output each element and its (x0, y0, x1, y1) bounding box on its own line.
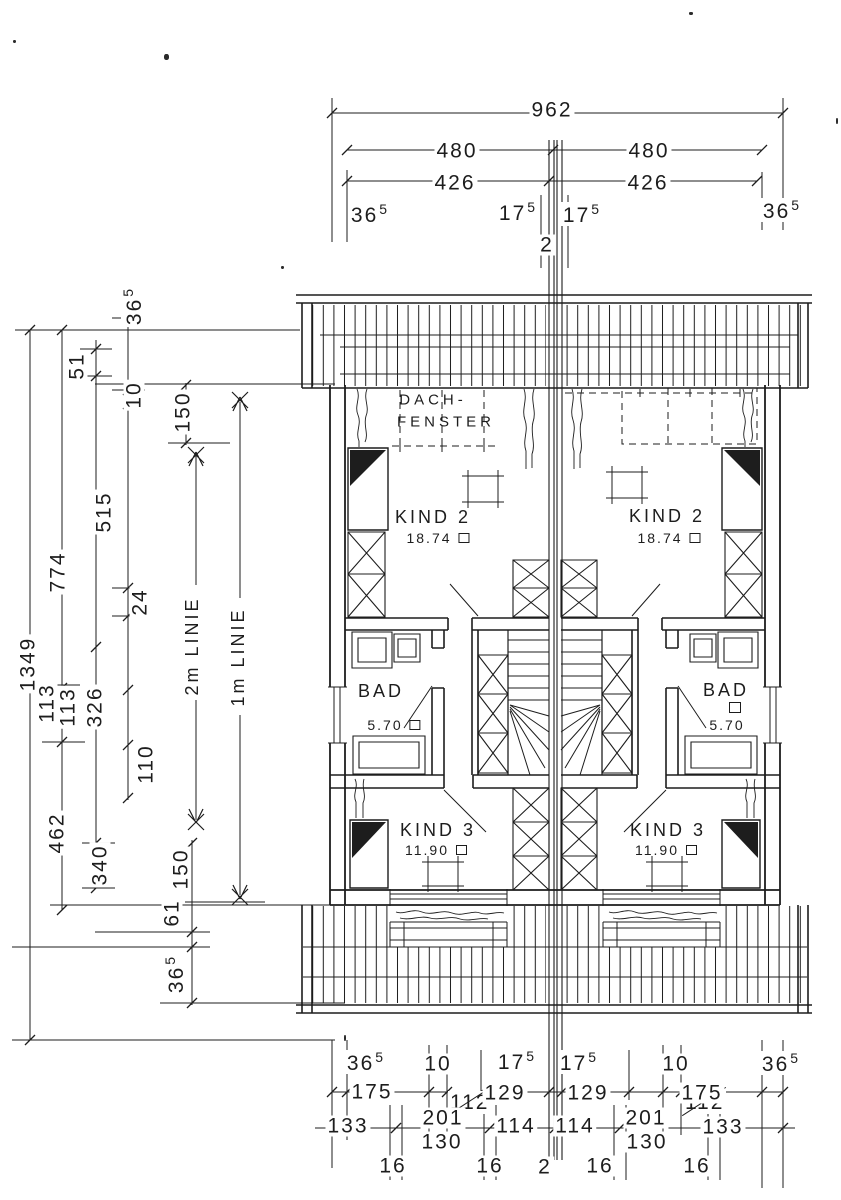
room-area-kind3-left: 11.90 (403, 843, 469, 857)
dim-bot-175b-left: 175 (349, 1082, 394, 1103)
dim-bot-133-right: 133 (700, 1117, 745, 1138)
room-name-kind3-right: KIND 3 (628, 821, 708, 839)
door-leaf-kind2-left (350, 450, 386, 486)
dim-left-150a: 150 (173, 389, 194, 434)
dim-bot-201-right: 201 (623, 1108, 668, 1129)
floor-plan-drawing (0, 0, 841, 1200)
dim-bot-16-d: 16 (681, 1156, 712, 1177)
dim-left-515: 515 (94, 489, 115, 534)
dim-top-365-right: 365 (761, 198, 801, 222)
dim-top-480-right: 480 (626, 141, 671, 162)
dim-left-110: 110 (136, 742, 157, 785)
dim-left-24: 24 (130, 586, 151, 617)
scan-speck (836, 118, 838, 124)
room-name-bad-right: BAD (701, 681, 751, 699)
dim-top-overall: 962 (529, 100, 574, 121)
dim-bot-175-left: 175 (496, 1049, 536, 1073)
sqm-symbol (459, 533, 470, 543)
dim-top-365-left: 365 (349, 202, 389, 226)
scan-speck (164, 54, 169, 60)
dim-bot-114-right: 114 (553, 1116, 596, 1137)
sqm-symbol (686, 845, 697, 855)
room-area-kind2-right: 18.74 (635, 531, 702, 545)
dim-bot-130-right: 130 (624, 1132, 669, 1153)
scan-speck (689, 12, 693, 15)
dim-top-gap: 2 (538, 235, 556, 256)
scanned-floor-plan-sheet: 962 480 480 426 426 365 175 175 365 2 36… (0, 0, 841, 1200)
sqm-symbol (729, 702, 741, 713)
door-leaf-kind2-right (724, 450, 760, 486)
label-dachfenster-1: DACH- (397, 393, 469, 408)
dim-top-480-left: 480 (434, 141, 479, 162)
scan-speck (344, 1035, 346, 1041)
dim-top-175-left: 175 (497, 200, 537, 224)
dim-top-426-left: 426 (432, 173, 477, 194)
sqm-symbol (410, 720, 421, 730)
dim-left-774: 774 (48, 549, 69, 594)
dim-top-175-right: 175 (561, 202, 601, 226)
room-area-bad-left: 5.70 (365, 718, 422, 732)
dim-left-365-bottom: 365 (163, 955, 187, 995)
dim-bot-365-right: 365 (760, 1051, 800, 1075)
dim-bot-2: 2 (536, 1157, 554, 1178)
dim-top-426-right: 426 (625, 173, 670, 194)
room-name-kind2-right: KIND 2 (627, 507, 707, 525)
dim-bot-10-right: 10 (660, 1054, 691, 1075)
scan-speck (281, 266, 284, 269)
dim-bot-129-left: 129 (482, 1083, 527, 1104)
dim-bot-129-right: 129 (565, 1083, 610, 1104)
dim-left-365-top: 365 (121, 287, 145, 327)
dim-bot-201-left: 201 (420, 1108, 465, 1129)
sqm-symbol (690, 533, 701, 543)
dim-bot-133-left: 133 (325, 1116, 370, 1137)
dim-bot-175b-right: 175 (679, 1083, 724, 1104)
dim-left-326: 326 (85, 684, 106, 729)
dim-bot-16-b: 16 (474, 1156, 505, 1177)
dim-left-340: 340 (90, 842, 111, 887)
sqm-symbol (456, 845, 467, 855)
scan-speck (13, 40, 16, 43)
dim-bot-130-left: 130 (419, 1132, 464, 1153)
dim-bot-16-a: 16 (377, 1156, 408, 1177)
ref-line-1m-label: 1m LINIE (229, 605, 247, 708)
label-dachfenster-2: FENSTER (395, 415, 497, 430)
room-name-kind3-left: KIND 3 (398, 821, 478, 839)
dim-left-462: 462 (47, 810, 68, 855)
door-leaf-kind3-left (352, 822, 386, 858)
room-area-kind2-left: 18.74 (404, 531, 471, 545)
room-name-bad-left: BAD (356, 682, 406, 700)
dim-left-113a: 113 (37, 681, 58, 724)
dim-bot-10-left: 10 (422, 1054, 453, 1075)
room-area-kind3-right: 11.90 (633, 843, 699, 857)
room-name-kind2-left: KIND 2 (393, 508, 473, 526)
dim-left-113b: 113 (58, 685, 79, 728)
dim-bot-114-left: 114 (494, 1116, 537, 1137)
dim-bot-365-left: 365 (345, 1050, 385, 1074)
room-area-bad-right: 5.70 (707, 718, 746, 732)
dim-bot-16-c: 16 (584, 1156, 615, 1177)
dim-left-150b: 150 (171, 846, 192, 891)
dim-bot-175-right: 175 (558, 1050, 598, 1074)
dim-left-51: 51 (67, 350, 88, 381)
ref-line-2m-label: 2m LINIE (183, 594, 201, 697)
dim-left-10: 10 (124, 379, 145, 410)
dim-left-61: 61 (162, 897, 183, 928)
door-leaf-kind3-right (724, 822, 758, 858)
